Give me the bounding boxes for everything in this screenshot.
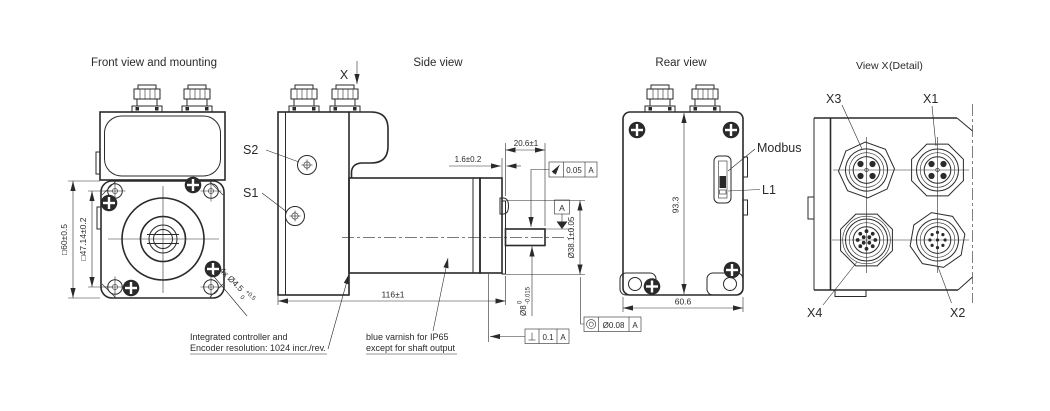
runout-icon bbox=[554, 165, 560, 174]
perpendicularity-frame: 0.1 A bbox=[489, 274, 570, 344]
controller-note: Integrated controller and Encoder resolu… bbox=[190, 274, 349, 354]
front-housing bbox=[96, 112, 225, 180]
side-motor-body bbox=[342, 178, 568, 274]
dim-shaft-diameter-sup: 0 bbox=[518, 300, 524, 304]
runout-datum-text: A bbox=[588, 166, 594, 175]
dim-shaft-length: 20.6±1 bbox=[506, 139, 546, 226]
dim-width-text: 60.6 bbox=[675, 297, 692, 307]
datum-label-text: A bbox=[559, 203, 565, 213]
m12-connector-icon bbox=[132, 85, 162, 112]
dim-shaft-diameter-sub: -0.015 bbox=[526, 286, 532, 304]
dim-overall-length-text: 116±1 bbox=[382, 290, 405, 300]
holes-note-sup: +0.5 bbox=[244, 289, 257, 302]
runout-tolerance-frame: 0.05 A bbox=[531, 162, 597, 227]
label-x3: X3 bbox=[826, 92, 862, 149]
screw-icon bbox=[101, 195, 118, 212]
side-view-title: Side view bbox=[413, 57, 463, 69]
l1-label-text: L1 bbox=[762, 183, 776, 197]
dim-shaft-diameter: Ø8 0 -0.015 bbox=[518, 247, 533, 317]
concentricity-icon bbox=[587, 320, 596, 329]
x4-label-text: X4 bbox=[807, 306, 822, 320]
perpendicularity-icon bbox=[529, 333, 536, 341]
screw-icon bbox=[205, 261, 222, 278]
connector-x2-icon[interactable] bbox=[907, 210, 967, 270]
x3-label-text: X3 bbox=[826, 92, 841, 106]
dim-hole-pattern-text: □47.14±0.2 bbox=[78, 217, 88, 260]
label-x1: X1 bbox=[923, 92, 938, 146]
s2-label: S2 bbox=[243, 143, 258, 157]
varnish-note-line2: except for shaft output bbox=[366, 343, 456, 353]
perpendicularity-datum-text: A bbox=[560, 333, 566, 342]
varnish-note-line1: blue varnish for IP65 bbox=[366, 332, 449, 342]
mounting-hole-icon bbox=[629, 278, 642, 291]
screw-label-s1: S1 bbox=[243, 186, 305, 226]
screw-icon bbox=[298, 156, 317, 175]
concentricity-tolerance-text: Ø0.08 bbox=[603, 321, 625, 330]
controller-note-line2: Encoder resolution: 1024 incr./rev. bbox=[190, 343, 326, 353]
view-x-subtitle: (Detail) bbox=[889, 60, 923, 72]
dim-shaft-length-text: 20.6±1 bbox=[514, 139, 539, 148]
mounting-hole-icon bbox=[724, 278, 737, 291]
dim-boss-height-text: 1.6±0.2 bbox=[455, 155, 482, 164]
mounting-hole-icon bbox=[201, 181, 222, 202]
view-x-marker-text: X bbox=[340, 68, 349, 82]
rear-view: Rear view 93.3 bbox=[620, 57, 801, 312]
view-x-marker: X bbox=[340, 61, 357, 84]
l1-led-icon bbox=[720, 190, 727, 194]
dim-boss-height: 1.6±0.2 bbox=[449, 143, 521, 196]
m12-connector-icon bbox=[289, 85, 319, 112]
dim-height-text: 93.3 bbox=[671, 196, 681, 213]
side-housing bbox=[278, 112, 388, 295]
modbus-label-text: Modbus bbox=[757, 141, 801, 155]
s1-label: S1 bbox=[243, 186, 258, 200]
l1-label: L1 bbox=[728, 183, 776, 197]
label-x2: X2 bbox=[938, 267, 965, 320]
m12-connector-icon bbox=[690, 85, 720, 112]
side-view: Side view X S2 S1 bbox=[243, 57, 641, 354]
perpendicularity-tolerance-text: 0.1 bbox=[542, 333, 554, 342]
front-view-title: Front view and mounting bbox=[91, 57, 217, 69]
view-x-detail: View X (Detail) bbox=[807, 60, 973, 320]
rear-view-title: Rear view bbox=[655, 57, 707, 69]
datum-triangle-icon bbox=[557, 222, 568, 230]
drawing-svg: Front view and mounting bbox=[0, 0, 1050, 411]
controller-note-line1: Integrated controller and bbox=[190, 332, 288, 342]
mounting-hole-icon bbox=[201, 277, 222, 298]
dim-body-square-text: □60±0.5 bbox=[59, 224, 69, 255]
screw-icon bbox=[724, 262, 741, 279]
holes-note-text: 4x Ø4.5 bbox=[218, 265, 246, 293]
dim-pilot-diameter-text: Ø38.1±0.05 bbox=[567, 216, 576, 258]
connector-panel bbox=[808, 104, 973, 303]
dim-shaft-diameter-text: Ø8 bbox=[519, 305, 528, 316]
dim-overall-length: 116±1 bbox=[278, 276, 506, 305]
technical-drawing: Front view and mounting bbox=[0, 0, 1050, 411]
screw-label-s2: S2 bbox=[243, 143, 317, 175]
screw-icon bbox=[644, 278, 661, 295]
screw-icon bbox=[123, 280, 140, 297]
view-x-title: View X bbox=[856, 60, 889, 72]
runout-tolerance-text: 0.05 bbox=[566, 166, 582, 175]
dim-width: 60.6 bbox=[623, 297, 743, 313]
m12-connector-icon bbox=[330, 85, 360, 112]
modbus-switch[interactable] bbox=[714, 156, 731, 203]
screw-icon bbox=[286, 207, 305, 226]
screw-icon bbox=[185, 177, 202, 194]
dim-height: 93.3 bbox=[671, 113, 685, 294]
holes-note-sub: 0 bbox=[238, 295, 245, 302]
screw-icon bbox=[629, 122, 646, 139]
screw-icon bbox=[723, 122, 740, 139]
front-view: Front view and mounting bbox=[59, 57, 349, 354]
concentricity-datum-text: A bbox=[632, 321, 638, 330]
modbus-label: Modbus bbox=[728, 141, 801, 171]
m12-connector-icon bbox=[645, 85, 675, 112]
x1-label-text: X1 bbox=[923, 92, 938, 106]
m12-connector-icon bbox=[182, 85, 212, 112]
x2-label-text: X2 bbox=[950, 306, 965, 320]
concentricity-frame: Ø0.08 A bbox=[581, 277, 642, 332]
